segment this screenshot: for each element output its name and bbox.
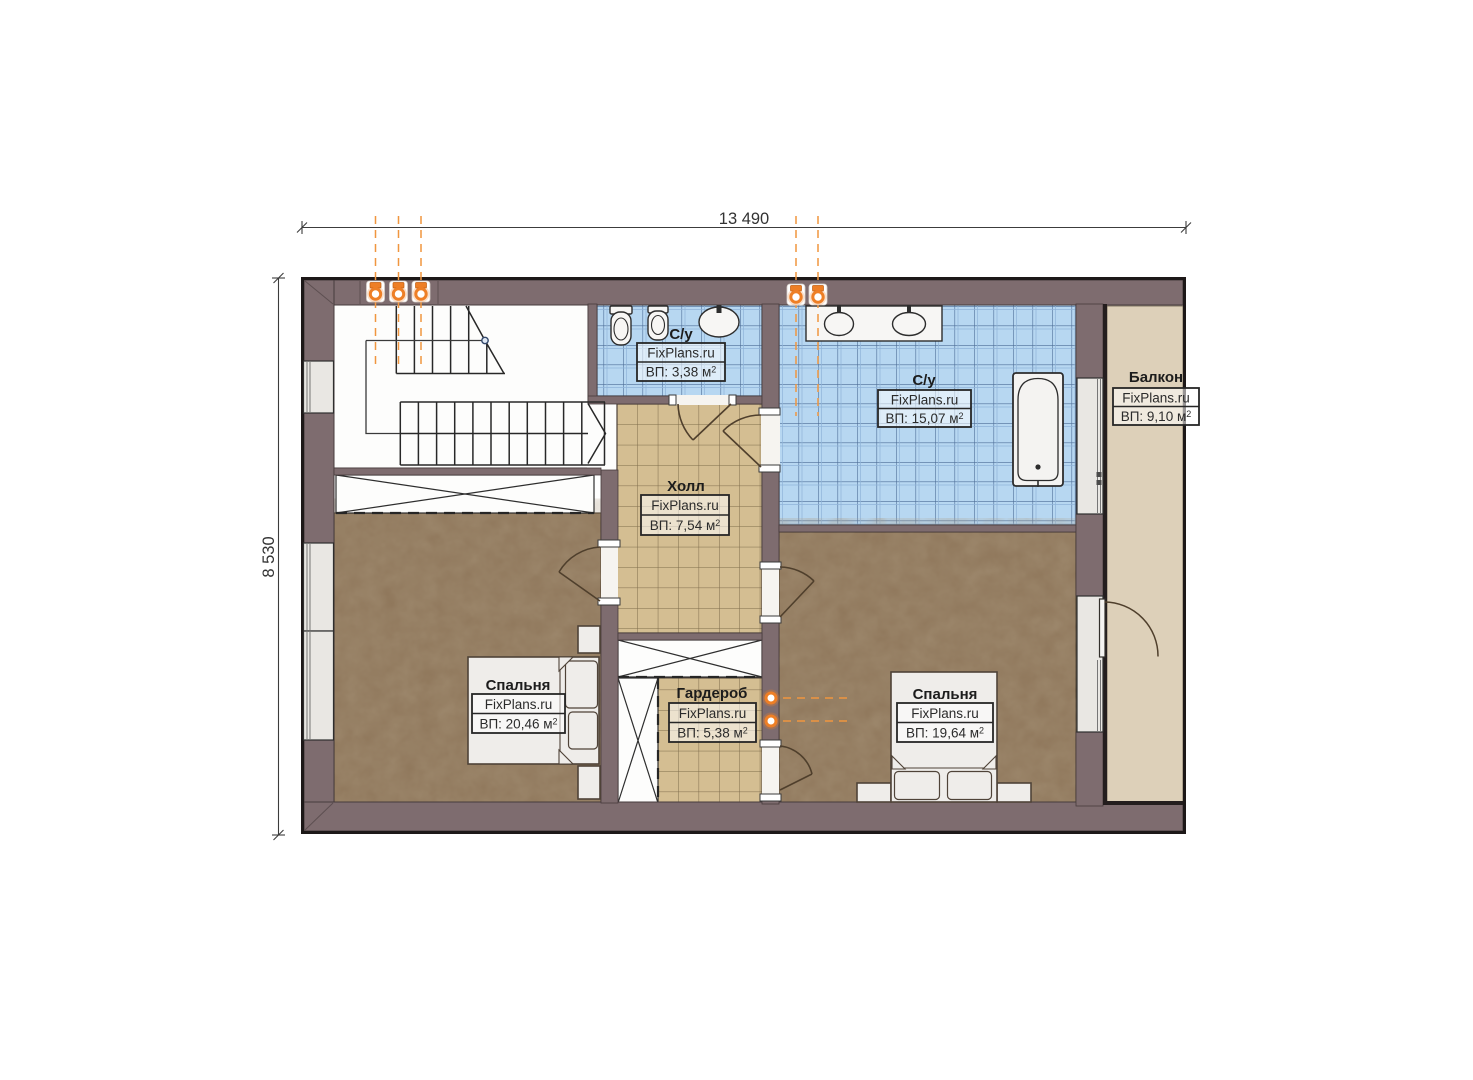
svg-text:FixPlans.ru: FixPlans.ru — [1122, 390, 1190, 405]
svg-text:Балкон: Балкон — [1129, 369, 1183, 386]
svg-text:FixPlans.ru: FixPlans.ru — [485, 697, 553, 712]
svg-text:Спальня: Спальня — [913, 686, 978, 703]
svg-text:FixPlans.ru: FixPlans.ru — [651, 498, 719, 513]
svg-text:ВП: 15,07 м2: ВП: 15,07 м2 — [885, 411, 963, 426]
svg-text:ВП: 20,46 м2: ВП: 20,46 м2 — [479, 716, 557, 731]
svg-text:Спальня: Спальня — [486, 677, 551, 694]
svg-text:ВП: 9,10 м2: ВП: 9,10 м2 — [1121, 409, 1192, 424]
svg-text:FixPlans.ru: FixPlans.ru — [647, 346, 715, 361]
svg-text:8 530: 8 530 — [260, 536, 278, 577]
svg-text:FixPlans.ru: FixPlans.ru — [911, 706, 979, 721]
svg-text:ВП: 7,54 м2: ВП: 7,54 м2 — [650, 518, 721, 533]
svg-text:FixPlans.ru: FixPlans.ru — [679, 706, 747, 721]
svg-text:С/у: С/у — [669, 326, 693, 343]
svg-text:FixPlans.ru: FixPlans.ru — [891, 392, 959, 407]
svg-text:ВП: 3,38 м2: ВП: 3,38 м2 — [646, 365, 717, 380]
svg-text:Холл: Холл — [667, 478, 705, 495]
svg-text:ВП: 19,64 м2: ВП: 19,64 м2 — [906, 725, 984, 740]
svg-text:Гардероб: Гардероб — [677, 685, 748, 702]
svg-text:13 490: 13 490 — [719, 210, 769, 228]
svg-text:ВП: 5,38 м2: ВП: 5,38 м2 — [677, 725, 748, 740]
svg-text:С/у: С/у — [912, 372, 936, 389]
